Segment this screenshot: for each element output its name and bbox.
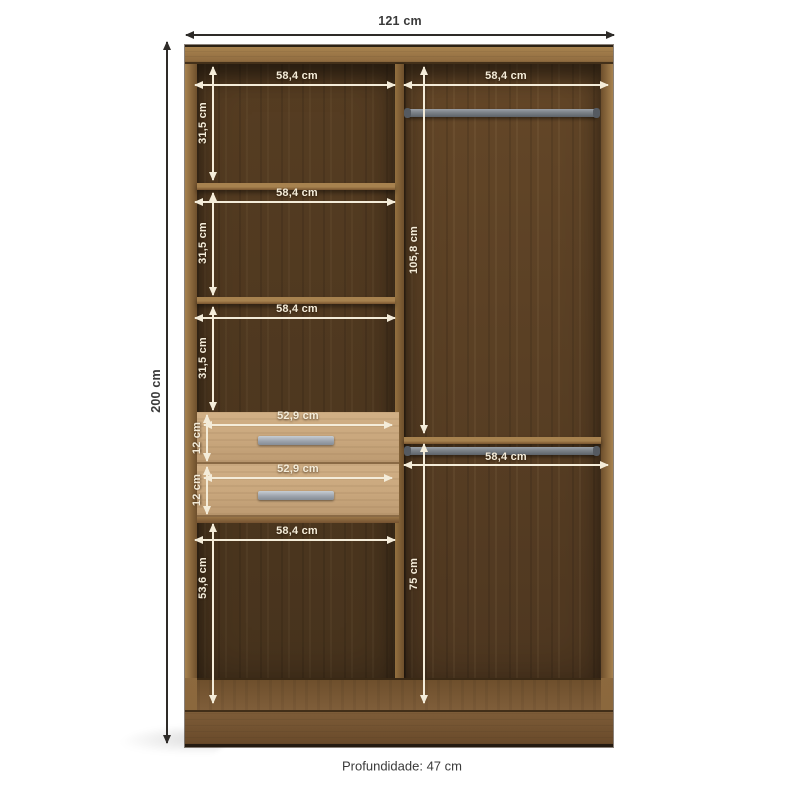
drawer-2-handle: [258, 491, 334, 500]
base-plinth: [185, 710, 613, 747]
bottom-panel: [197, 678, 601, 710]
drawer2-height-arrow: [206, 467, 208, 514]
drawer1-height-arrow: [206, 415, 208, 461]
left-section2-height-arrow: [212, 193, 214, 295]
left-section2-height-label: 31,5 cm: [197, 222, 209, 264]
overall-width-arrow: [186, 34, 614, 36]
left-section1-height-arrow: [212, 67, 214, 180]
right-upper-height-arrow: [423, 67, 425, 433]
center-divider-panel: [395, 64, 404, 678]
left-bottom-height-label: 53,6 cm: [197, 557, 209, 599]
left-section3-width-arrow: [195, 317, 395, 319]
drawer1-height-label: 12 cm: [191, 422, 203, 454]
right-side-panel: [601, 64, 613, 678]
left-section1-height-label: 31,5 cm: [197, 102, 209, 144]
left-compartment: [197, 64, 395, 678]
right-lower-width-arrow: [404, 464, 608, 466]
top-panel: [185, 45, 613, 64]
drawer-base-strip: [197, 517, 399, 523]
overall-height-arrow: [166, 42, 168, 743]
drawer2-height-label: 12 cm: [191, 474, 203, 506]
left-section3-width-label: 58,4 cm: [276, 303, 318, 315]
left-section3-height-arrow: [212, 307, 214, 410]
left-bottom-width-arrow: [195, 539, 395, 541]
left-section2-width-label: 58,4 cm: [276, 187, 318, 199]
right-shelf: [404, 437, 601, 444]
left-bottom-width-label: 58,4 cm: [276, 525, 318, 537]
drawer-1-handle: [258, 436, 334, 445]
wardrobe-dimension-diagram: 121 cm 200 cm 58,4 cm 31,5 cm 58,4 cm 31…: [0, 0, 800, 800]
right-upper-width-arrow: [404, 84, 608, 86]
drawer2-width-arrow: [204, 477, 392, 479]
right-upper-height-label: 105,8 cm: [408, 226, 420, 274]
left-section1-width-arrow: [195, 84, 395, 86]
overall-width-label: 121 cm: [378, 14, 422, 28]
right-lower-height-label: 75 cm: [408, 558, 420, 590]
drawer2-width-label: 52,9 cm: [277, 463, 319, 475]
left-section3-height-label: 31,5 cm: [197, 337, 209, 379]
right-lower-width-label: 58,4 cm: [485, 451, 527, 463]
drawer1-width-label: 52,9 cm: [277, 410, 319, 422]
depth-label: Profundidade: 47 cm: [342, 759, 462, 774]
left-side-panel: [185, 64, 197, 678]
overall-height-label: 200 cm: [149, 369, 163, 413]
right-lower-height-arrow: [423, 444, 425, 703]
drawer1-width-arrow: [204, 424, 392, 426]
right-compartment: [404, 64, 601, 678]
right-upper-width-label: 58,4 cm: [485, 70, 527, 82]
left-section2-width-arrow: [195, 201, 395, 203]
hanging-rod-upper: [406, 109, 598, 117]
left-section1-width-label: 58,4 cm: [276, 70, 318, 82]
left-bottom-height-arrow: [212, 524, 214, 703]
